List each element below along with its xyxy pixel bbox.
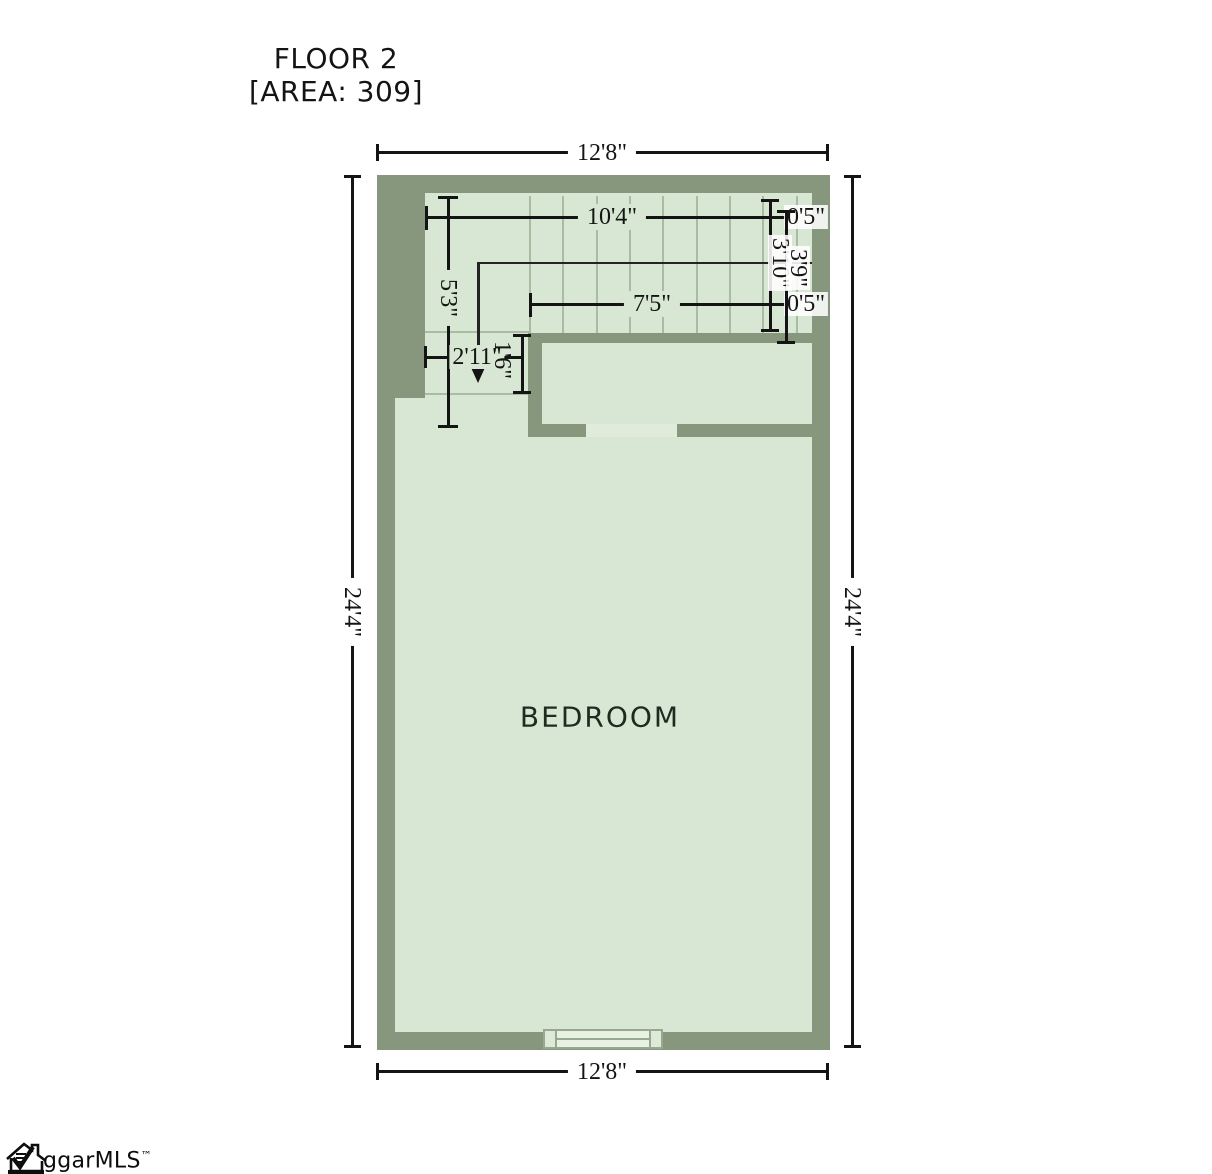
thick-wall-upper-left — [395, 193, 425, 398]
dim-tick — [438, 425, 458, 428]
dim-label-overall-height-right: 24'4" — [839, 578, 865, 646]
dim-tick — [376, 1063, 379, 1080]
dim-tick — [529, 293, 532, 317]
dim-tick — [777, 341, 795, 344]
page-title: FLOOR 2 [AREA: 309] — [249, 42, 423, 108]
dim-tick — [438, 196, 458, 199]
dim-tick — [844, 1045, 861, 1048]
window-post-right — [649, 1031, 661, 1047]
window-post-left — [545, 1031, 557, 1047]
dim-tick — [761, 329, 779, 332]
dim-tick — [761, 199, 779, 202]
dim-tick — [344, 175, 361, 178]
area-subtitle: [AREA: 309] — [249, 75, 423, 108]
closet-bottom-wall-right — [677, 424, 812, 437]
closet-bottom-wall-left — [528, 424, 586, 437]
dim-tick — [844, 175, 861, 178]
window-mid-line — [557, 1038, 649, 1040]
closet-top-wall — [528, 333, 812, 343]
floor-plan-page: FLOOR 2 [AREA: 309] — [0, 0, 1212, 1174]
floor-title: FLOOR 2 — [249, 42, 423, 75]
dim-label-landing-depth: 1'6" — [490, 341, 514, 379]
logo-name: ggarMLS — [43, 1148, 141, 1173]
dim-tick — [826, 1063, 829, 1080]
dim-tick — [424, 346, 427, 368]
dim-label-stair-offset-top: 0'5" — [784, 205, 828, 229]
dim-label-overall-width-bottom: 12'8" — [568, 1059, 636, 1085]
stair-path-horizontal — [478, 262, 812, 264]
dim-tick — [777, 210, 795, 213]
dim-label-stair-run-b: 3'9" — [786, 246, 810, 290]
dim-label-overall-width-top: 12'8" — [568, 140, 636, 166]
dim-label-stair-offset-mid: 0'5" — [784, 292, 828, 316]
dim-tick — [826, 144, 829, 161]
dim-tick — [513, 391, 531, 394]
closet-door-opening — [586, 424, 677, 437]
dim-tick — [344, 1045, 361, 1048]
window — [543, 1029, 663, 1049]
dim-label-stair-width: 10'4" — [578, 204, 646, 230]
dim-tick — [376, 144, 379, 161]
dim-tick — [425, 206, 428, 230]
logo-trademark: ™ — [141, 1149, 152, 1162]
dim-label-stair-run-width: 7'5" — [624, 291, 680, 317]
mls-logo: ggarMLS™ — [2, 1140, 152, 1174]
dim-line-landing-depth — [521, 334, 524, 394]
closet-left-wall — [528, 333, 542, 437]
dim-label-overall-height-left: 24'4" — [339, 578, 365, 646]
dim-tick — [513, 334, 531, 337]
logo-text: ggarMLS™ — [43, 1141, 152, 1174]
room-label: BEDROOM — [520, 701, 680, 734]
dim-label-landing-height: 5'3" — [435, 270, 461, 326]
